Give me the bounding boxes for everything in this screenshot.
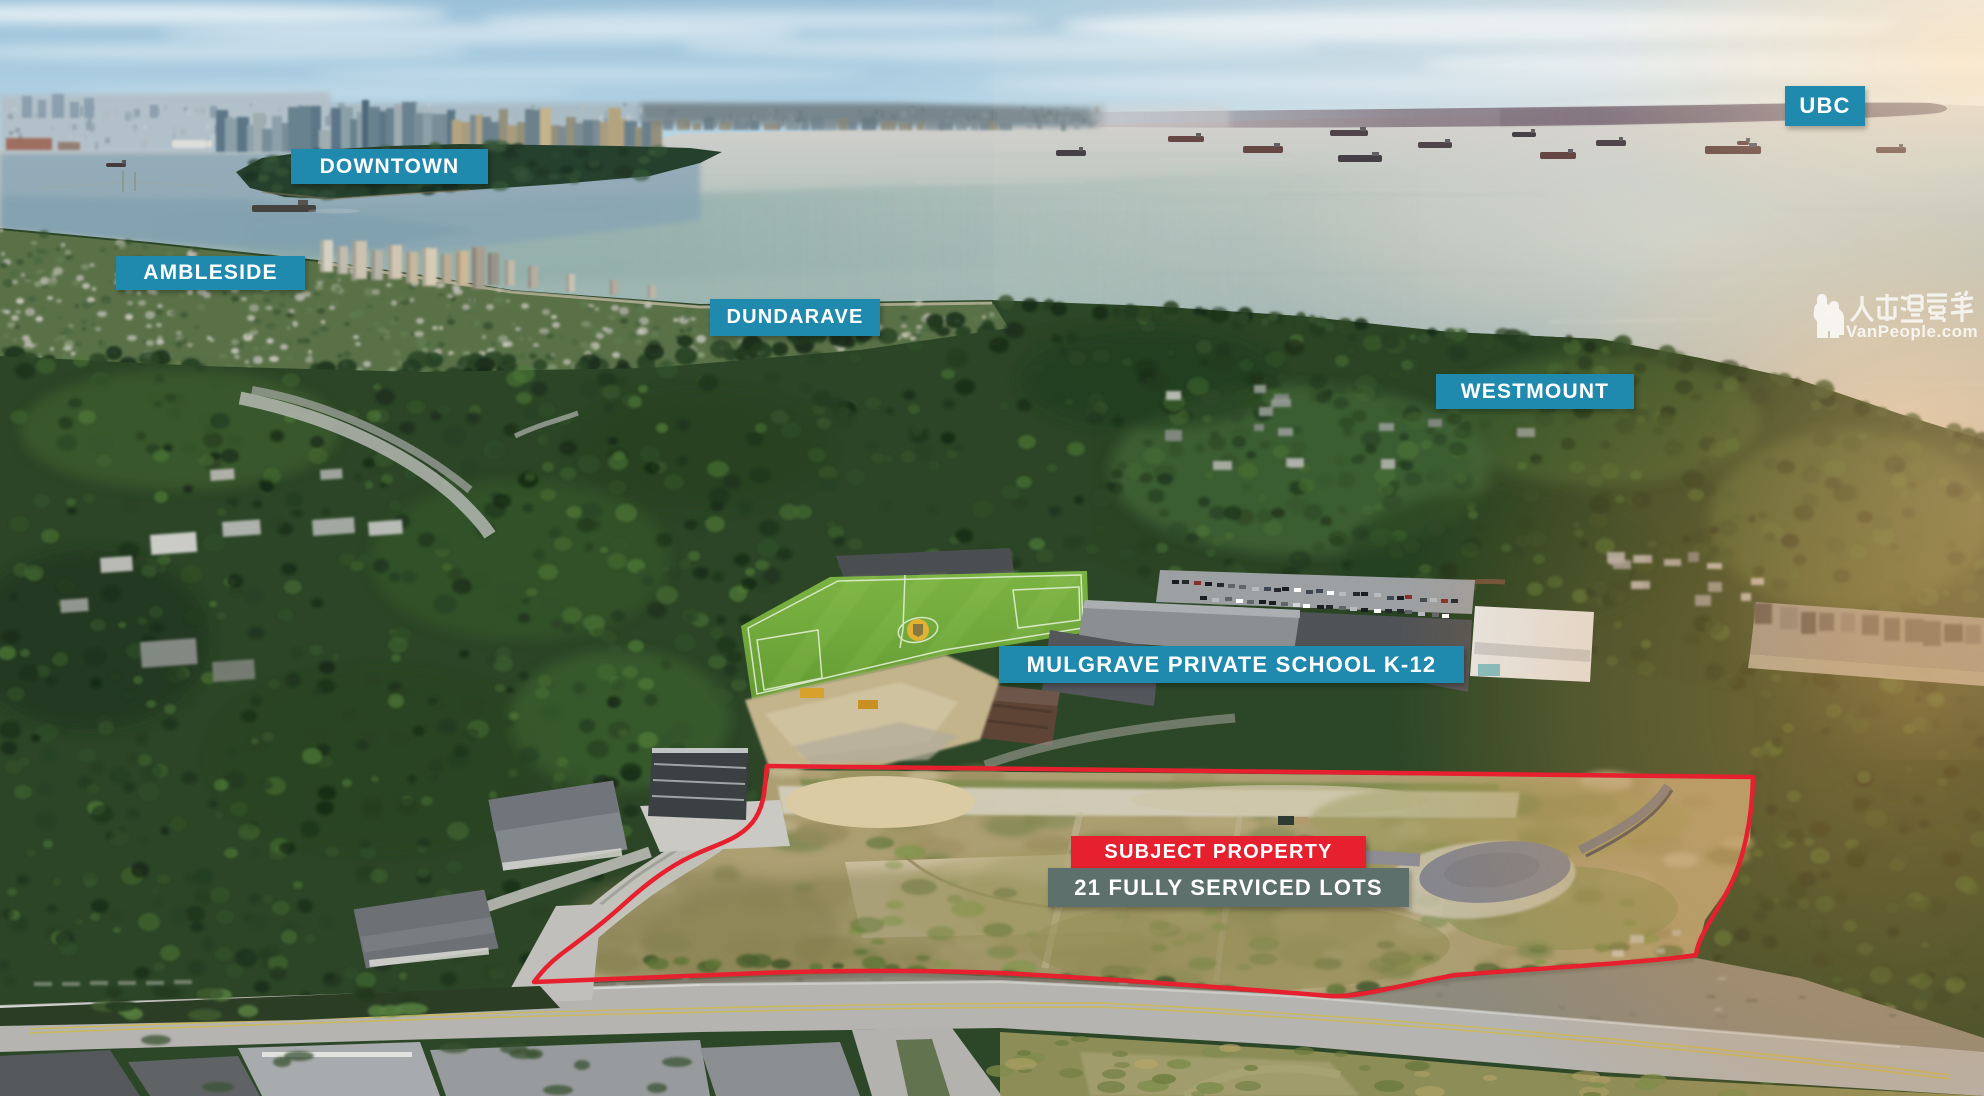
svg-text:VanPeople.com: VanPeople.com — [1846, 322, 1978, 341]
